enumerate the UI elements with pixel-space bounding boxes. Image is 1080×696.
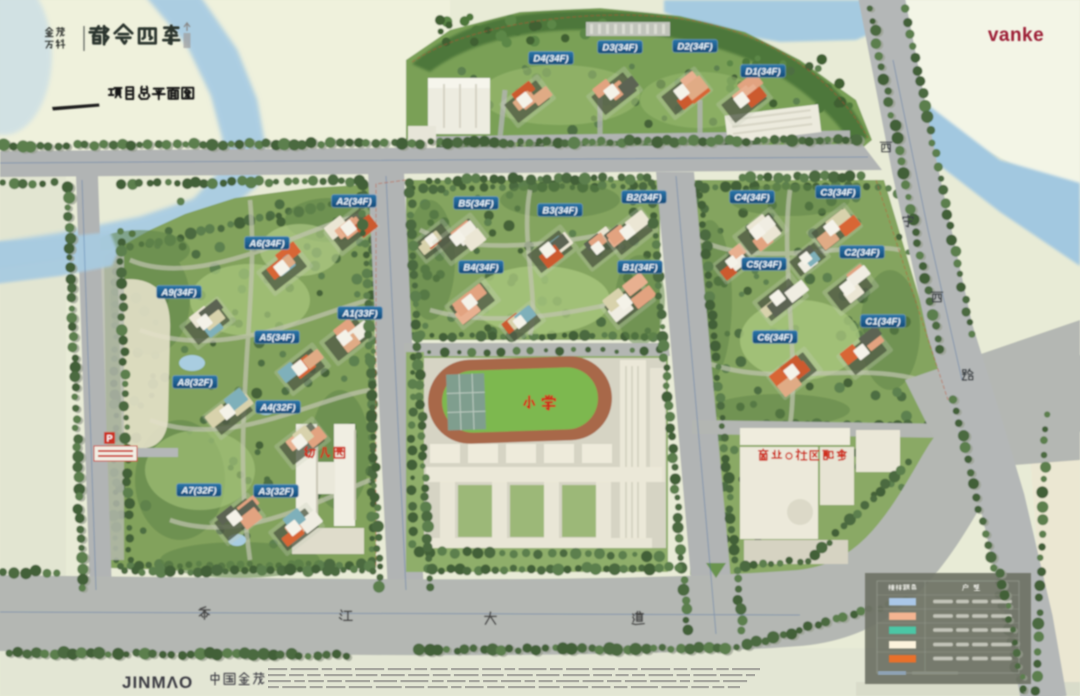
svg-text:C5(34F): C5(34F) (746, 259, 781, 270)
svg-text:B5(34F): B5(34F) (458, 198, 493, 209)
svg-text:C1(34F): C1(34F) (865, 316, 900, 327)
svg-text:C4(34F): C4(34F) (734, 192, 769, 203)
svg-text:A1(33F): A1(33F) (341, 308, 377, 319)
svg-text:D2(34F): D2(34F) (677, 41, 712, 52)
svg-text:C6(34F): C6(34F) (757, 332, 792, 343)
svg-text:C2(34F): C2(34F) (844, 247, 879, 258)
svg-text:JINMΛO: JINMΛO (122, 673, 193, 692)
svg-text:D1(34F): D1(34F) (745, 66, 780, 77)
svg-text:B2(34F): B2(34F) (626, 192, 661, 203)
svg-text:A4(32F): A4(32F) (259, 402, 295, 413)
svg-text:C3(34F): C3(34F) (820, 187, 855, 198)
svg-text:A7(32F): A7(32F) (180, 485, 216, 496)
svg-text:B3(34F): B3(34F) (542, 205, 577, 216)
svg-text:A5(34F): A5(34F) (258, 332, 294, 343)
svg-text:A9(34F): A9(34F) (160, 287, 196, 298)
svg-text:P: P (106, 434, 112, 444)
svg-text:A3(32F): A3(32F) (257, 486, 293, 497)
svg-text:B4(34F): B4(34F) (463, 262, 498, 273)
svg-text:A2(34F): A2(34F) (335, 196, 371, 207)
svg-text:A8(32F): A8(32F) (176, 377, 212, 388)
svg-text:D4(34F): D4(34F) (533, 53, 568, 64)
svg-text:D3(34F): D3(34F) (602, 42, 637, 53)
svg-text:A6(34F): A6(34F) (248, 238, 284, 249)
svg-text:vanke: vanke (988, 25, 1044, 46)
svg-text:B1(34F): B1(34F) (622, 262, 657, 273)
